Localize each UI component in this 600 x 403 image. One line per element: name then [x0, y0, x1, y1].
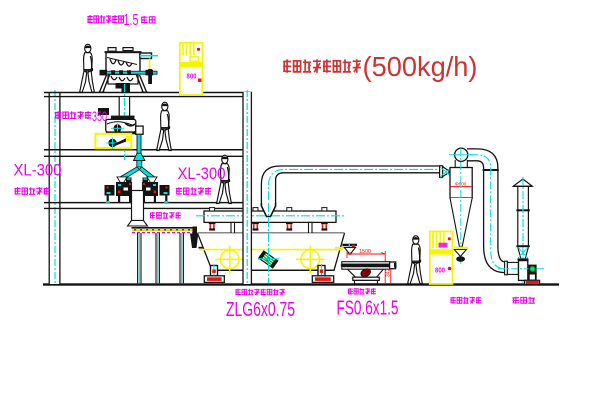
svg-text:FS0.6x1.5: FS0.6x1.5 — [337, 298, 399, 320]
svg-text:800: 800 — [187, 71, 197, 80]
svg-text:1.5: 1.5 — [124, 12, 139, 29]
svg-text:XL-300: XL-300 — [14, 160, 62, 179]
svg-text:342: 342 — [385, 268, 391, 277]
svg-text:350: 350 — [92, 108, 107, 124]
svg-text:1500: 1500 — [359, 249, 371, 255]
svg-text:800: 800 — [435, 265, 445, 274]
svg-text:(500kg/h): (500kg/h) — [363, 51, 478, 82]
svg-text:ZLG6x0.75: ZLG6x0.75 — [226, 299, 295, 321]
svg-text:XL-300: XL-300 — [178, 164, 226, 183]
